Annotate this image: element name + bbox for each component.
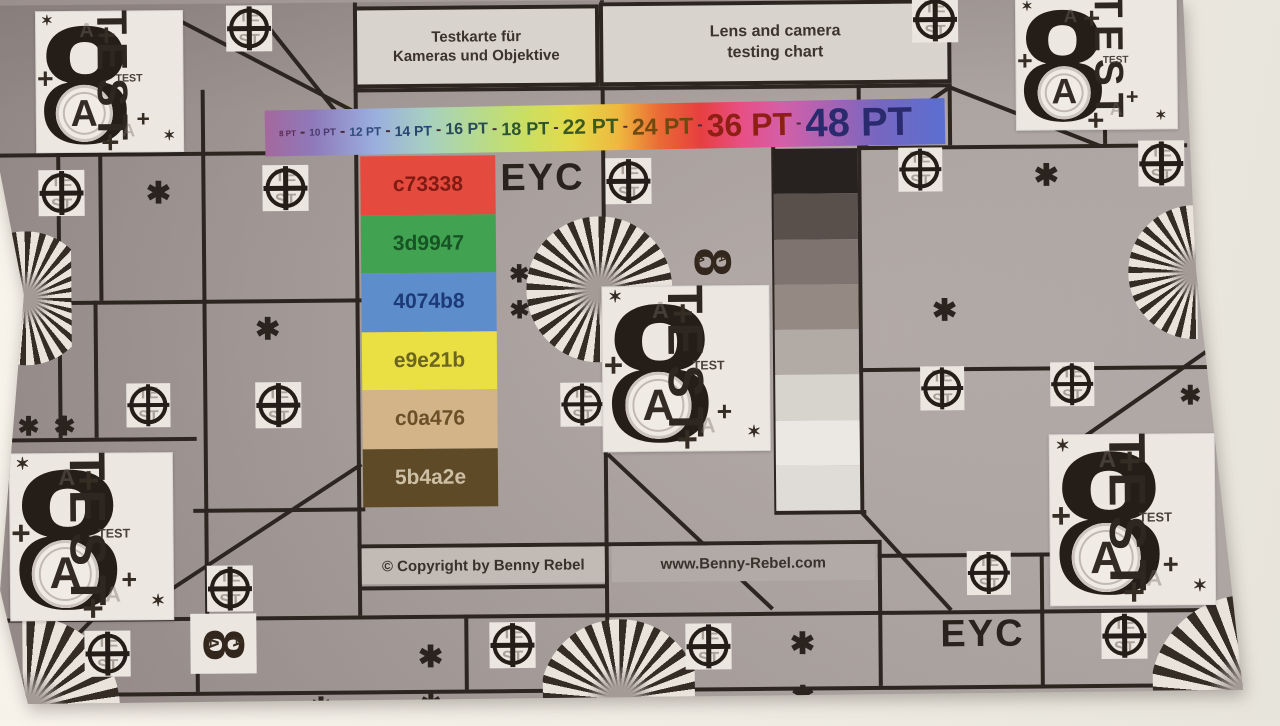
grid-line-h (358, 584, 608, 590)
crosshair-target: TEST (1138, 140, 1184, 186)
crosshair-vbar (276, 383, 281, 427)
crosshair-target: TEST (255, 382, 301, 428)
tile-plus-mark: + (11, 517, 31, 551)
crosshair-vbar (933, 0, 938, 42)
gray-step-3 (774, 239, 858, 285)
color-swatch-3d9947: 3d9947 (361, 214, 497, 274)
crosshair-vbar (626, 159, 631, 203)
crosshair-hbar (1229, 12, 1271, 17)
tile-star-mark: ✶ (1055, 438, 1070, 455)
crosshair-vbar (580, 383, 585, 425)
sideways-a-left: A (692, 255, 706, 264)
eight-test-tile: 8ATESTTEST++++✶✶AA (9, 452, 174, 621)
copyright-cell: © Copyright by Benny Rebel (362, 546, 605, 584)
crosshair-vbar (918, 148, 923, 190)
tile-noise-mark: A (58, 466, 75, 490)
tile-plus-mark: + (1087, 106, 1104, 131)
crosshair-vbar (59, 171, 64, 215)
tile-test-small: TEST (115, 73, 142, 85)
crosshair-target: TEST (84, 630, 130, 676)
tile-star-mark: ✶ (1193, 578, 1208, 595)
eight-test-tile: 8ATESTTEST++++✶✶AA (1015, 0, 1178, 131)
pt-size-label: 36 PT (706, 105, 792, 144)
tile-plus-mark: + (717, 398, 733, 425)
crosshair-vbar (1159, 141, 1164, 185)
asterisk-mark: ✱ (791, 682, 815, 710)
color-swatch-c73338: c73338 (360, 155, 496, 215)
tile-star-mark: ✶ (1155, 108, 1166, 122)
color-swatch-column: c733383d99474074b8e9e21bc0a4765b4a2e (360, 155, 498, 507)
title-box-german: Testkarte für Kameras und Objektive (353, 4, 600, 88)
crosshair-vbar (247, 6, 252, 50)
siemens-star-bottom-center (542, 616, 695, 699)
sideways-a-right: A (228, 636, 246, 647)
crosshair-target: TEST (898, 147, 942, 191)
eight-test-tile: 8ATESTTEST++++✶✶AA (601, 285, 770, 452)
pt-size-label: 10 PT (309, 127, 336, 138)
title-box-english: Lens and camera testing chart (599, 0, 952, 86)
pt-size-label: 12 PT (349, 124, 381, 139)
chart-card: c733383d99474074b8e9e21bc0a4765b4a2e 8 P… (0, 0, 1280, 720)
eight-test-tile: 8ATESTTEST++++✶✶AA (35, 10, 184, 153)
grid-line-diagonal (169, 463, 363, 592)
pt-separator: - (697, 117, 703, 135)
tile-plus-mark: + (1163, 550, 1179, 578)
crosshair-target: TEST (226, 5, 272, 51)
tile-plus-mark: + (121, 567, 137, 594)
tile-noise-mark: A (1110, 100, 1123, 118)
asterisk-mark: ✱ (420, 691, 442, 717)
crosshair-vbar (1070, 363, 1075, 405)
grid-line-v (98, 153, 103, 301)
crosshair-target: TEST (1228, 0, 1272, 37)
pt-size-label: 8 PT (279, 128, 296, 137)
pt-size-label: 48 PT (805, 99, 913, 146)
fan-disc (542, 618, 695, 698)
pt-separator: - (300, 124, 306, 142)
asterisk-mark: ✱ (790, 629, 815, 659)
fan-disc (0, 231, 72, 366)
tile-plus-mark: + (82, 590, 104, 621)
fan-disc (1152, 595, 1245, 691)
gray-step-6 (775, 374, 859, 420)
pt-size-label: 24 PT (632, 112, 694, 140)
asterisk-mark: ✱ (1179, 382, 1201, 408)
asterisk-mark: ✱ (18, 413, 40, 439)
website-cell: www.Benny-Rebel.com (612, 544, 875, 582)
tile-plus-mark: + (676, 422, 698, 453)
tile-test-small: TEST (98, 526, 130, 540)
tile-star-mark: ✶ (1021, 0, 1032, 13)
tile-noise-mark: A (700, 415, 716, 437)
asterisk-mark: ✱ (509, 299, 529, 323)
color-swatch-e9e21b: e9e21b (362, 331, 498, 391)
color-swatch-c0a476: c0a476 (362, 389, 498, 449)
tile-plus-mark: + (672, 295, 694, 332)
asterisk-mark: ✱ (509, 263, 529, 287)
tile-plus-mark: + (1126, 87, 1139, 109)
pt-size-label: 18 PT (501, 118, 549, 140)
crosshair-vbar (1122, 614, 1127, 658)
title-de-line1: Testkarte für (431, 27, 521, 47)
tile-noise-mark: A (79, 22, 94, 42)
asterisk-mark: ✱ (310, 694, 332, 720)
crosshair-ring (1230, 0, 1269, 34)
pt-separator: - (622, 118, 628, 136)
siemens-star-bottom-right (1152, 595, 1245, 691)
tile-noise-mark: A (1099, 448, 1117, 472)
pt-separator: - (553, 119, 559, 137)
color-swatch-5b4a2e: 5b4a2e (363, 448, 499, 508)
tile-star-mark: ✶ (608, 289, 622, 306)
grid-line-v (878, 540, 883, 686)
tile-noise-mark: A (1146, 568, 1162, 590)
crosshair-target: TEST (560, 382, 604, 426)
tile-plus-mark: + (1051, 500, 1071, 535)
crosshair-faint-te: TE (1228, 0, 1272, 11)
tile-noise-mark: A (652, 299, 669, 322)
tile-plus-mark: + (1123, 575, 1145, 607)
pt-size-label: 14 PT (394, 122, 432, 139)
tile-plus-mark: + (97, 19, 116, 50)
grid-line-v (201, 90, 210, 617)
crosshair-target: TEST (605, 158, 651, 204)
crosshair-target: TEST (1101, 613, 1147, 659)
pt-separator: - (796, 115, 802, 133)
gray-step-1 (773, 148, 857, 194)
tile-plus-mark: + (78, 463, 100, 500)
siemens-star-left-edge (0, 231, 72, 366)
tile-star-mark: ✶ (15, 457, 29, 474)
fan-disc (1128, 205, 1198, 340)
tile-noise-mark: A (1064, 7, 1078, 26)
title-en-line1: Lens and camera (710, 21, 841, 43)
gray-step-7 (776, 420, 860, 466)
color-swatch-4074b8: 4074b8 (361, 272, 497, 332)
crosshair-vbar (940, 367, 945, 409)
chart-surface: c733383d99474074b8e9e21bc0a4765b4a2e 8 P… (0, 0, 1280, 726)
asterisk-mark: ✱ (146, 179, 171, 209)
eyc-label-top: EYC (500, 156, 585, 200)
crosshair-target: TEST (685, 623, 731, 669)
grid-line-v (1040, 552, 1045, 684)
tile-plus-mark: + (604, 349, 624, 382)
grid-line-h (774, 510, 866, 515)
tile-plus-mark: + (1118, 444, 1140, 482)
crosshair-vbar (510, 623, 515, 667)
gray-step-8 (776, 465, 860, 511)
pt-size-label: 22 PT (562, 115, 618, 140)
crosshair-vbar (1248, 0, 1253, 36)
gray-step-4 (774, 284, 858, 330)
crosshair-target: TEST (38, 170, 84, 216)
photographed-test-chart: c733383d99474074b8e9e21bc0a4765b4a2e 8 P… (0, 0, 1280, 720)
crosshair-vbar (227, 566, 232, 610)
tile-noise-mark: A (122, 121, 135, 140)
asterisk-mark: ✱ (932, 296, 957, 326)
asterisk-mark: ✱ (418, 643, 443, 673)
eyc-label-bottom: EYC (940, 613, 1025, 657)
siemens-star-right-edge (1127, 205, 1198, 340)
grid-line-v (464, 615, 469, 690)
asterisk-mark: ✱ (255, 315, 280, 345)
tile-test-small: TEST (1139, 509, 1172, 524)
pt-separator: - (492, 120, 498, 138)
gray-step-5 (775, 329, 859, 375)
pt-size-label: 16 PT (445, 120, 488, 139)
pt-separator: - (385, 122, 391, 140)
pt-separator: - (340, 123, 346, 141)
sideways-a-right: A (716, 255, 728, 263)
crosshair-target: TEST (489, 622, 535, 668)
tile-star-mark: ✶ (163, 129, 175, 143)
asterisk-mark: ✱ (54, 413, 76, 439)
tile-plus-mark: + (101, 127, 120, 153)
tile-star-mark: ✶ (747, 424, 761, 441)
tile-star-mark: ✶ (41, 14, 53, 28)
sideways-a-left: A (201, 637, 222, 650)
gray-step-2 (774, 193, 858, 239)
crosshair-target: TEST (1050, 362, 1094, 406)
crosshair-target: TEST (920, 366, 964, 410)
tile-star-mark: ✶ (151, 593, 165, 610)
crosshair-vbar (986, 552, 991, 594)
pt-separator: - (436, 121, 442, 139)
tile-plus-mark: + (37, 65, 54, 94)
crosshair-target: TEST (262, 165, 308, 211)
sideways-eight-target: 8AA (682, 239, 740, 282)
tile-test-small: TEST (693, 358, 725, 372)
grid-line-v (93, 301, 98, 438)
grayscale-step-wedge (773, 148, 860, 511)
crosshair-vbar (706, 624, 711, 668)
crosshair-vbar (283, 166, 288, 210)
grid-line-h (25, 298, 361, 305)
tile-test-small: TEST (1103, 55, 1129, 66)
crosshair-vbar (146, 384, 151, 426)
tile-plus-mark: + (136, 107, 149, 130)
tile-plus-mark: + (1017, 47, 1033, 74)
asterisk-mark: ✱ (1034, 161, 1059, 191)
crosshair-target: TEST (912, 0, 958, 43)
crosshair-target: TEST (967, 551, 1011, 595)
tile-noise-mark: A (105, 584, 121, 606)
tile-plus-mark: + (1083, 4, 1100, 34)
grid-line-diagonal (606, 453, 773, 611)
crosshair-vbar (105, 632, 110, 676)
crosshair-faint-st: ST (1228, 18, 1272, 34)
grid-line-h (859, 365, 1209, 372)
crosshair-target: TEST (126, 383, 170, 427)
crosshair-target: TEST (207, 565, 253, 611)
eight-test-tile: 8ATESTTEST++++✶✶AA (1049, 433, 1216, 606)
grid-line-h (193, 507, 365, 513)
sideways-eight-target: 8AA (190, 613, 257, 674)
title-en-line2: testing chart (727, 42, 823, 64)
title-de-line2: Kameras und Objektive (393, 46, 560, 67)
